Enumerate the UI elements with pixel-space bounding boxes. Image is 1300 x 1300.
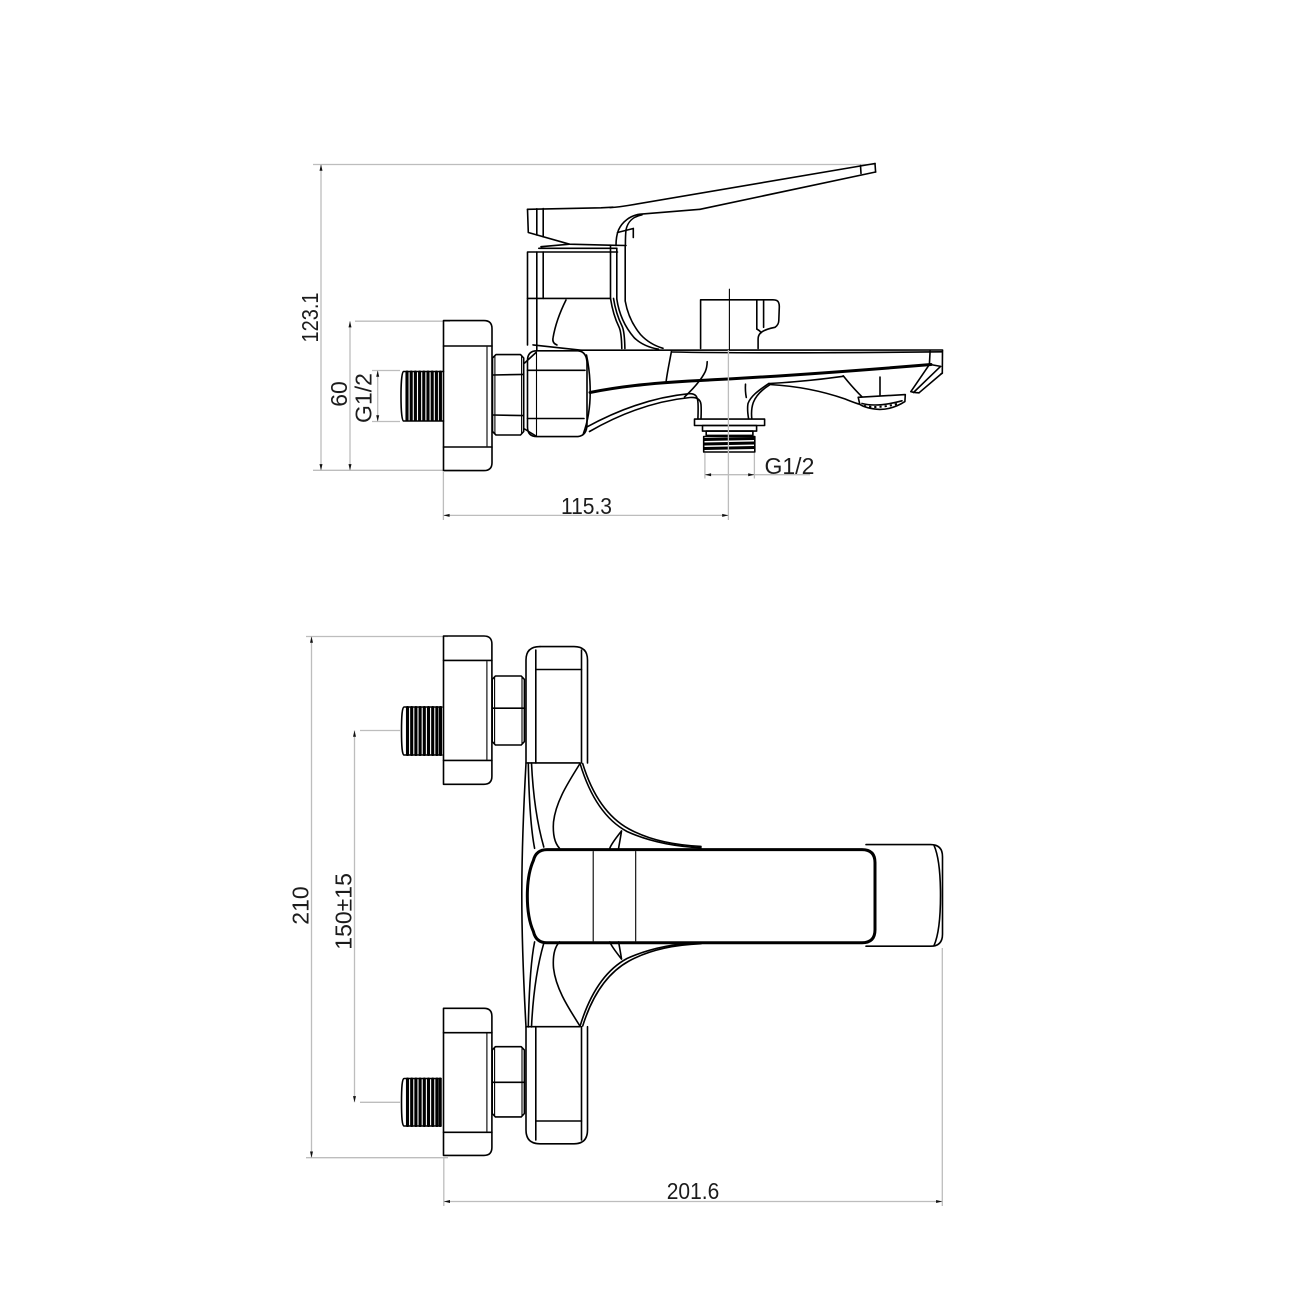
svg-text:G1/2: G1/2 bbox=[765, 453, 815, 479]
svg-text:150±15: 150±15 bbox=[331, 873, 357, 950]
svg-text:210: 210 bbox=[288, 886, 314, 924]
svg-text:G1/2: G1/2 bbox=[351, 373, 377, 423]
svg-text:201.6: 201.6 bbox=[667, 1178, 720, 1204]
svg-text:60: 60 bbox=[326, 381, 352, 407]
svg-text:123.1: 123.1 bbox=[297, 293, 323, 343]
svg-text:115.3: 115.3 bbox=[561, 493, 612, 519]
